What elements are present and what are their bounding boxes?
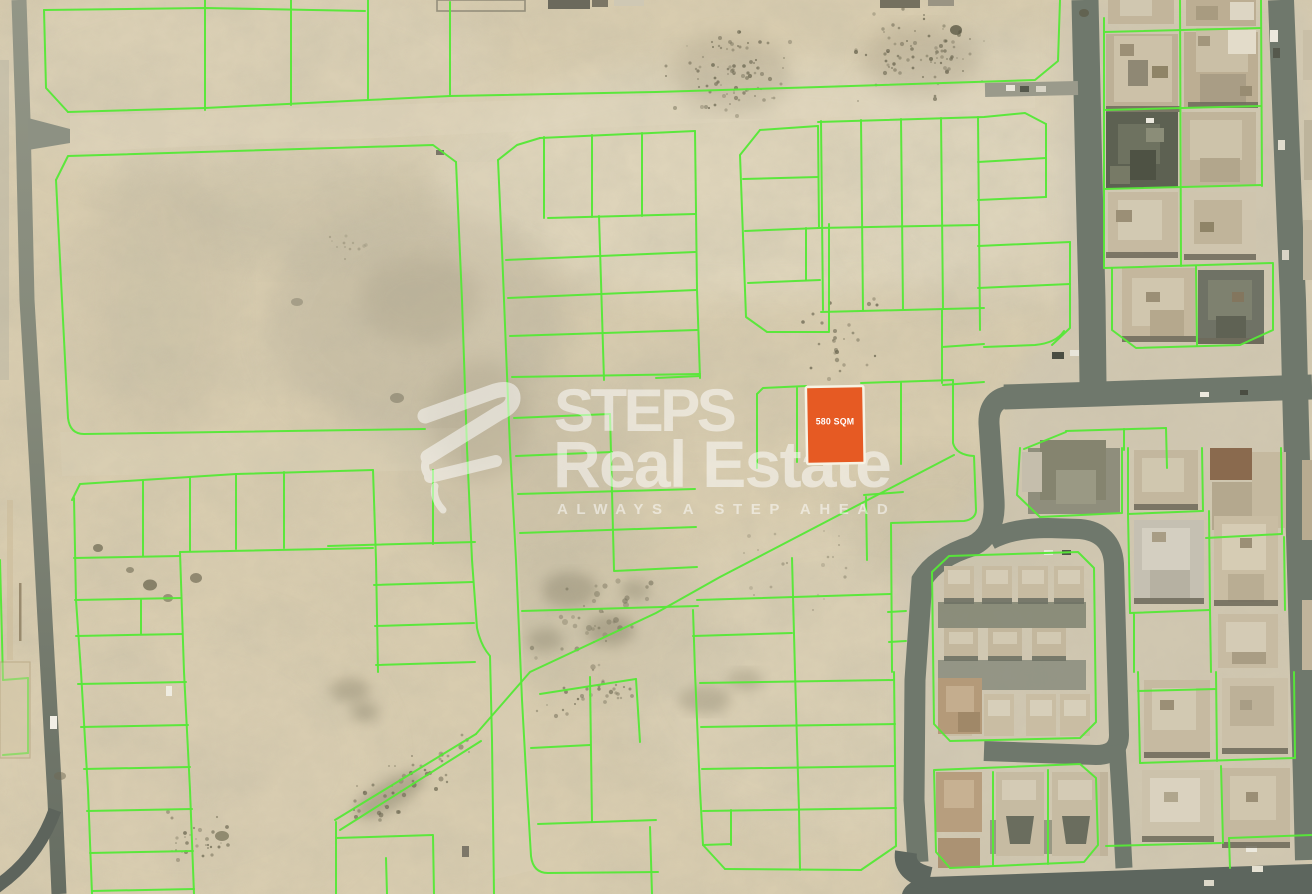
svg-text:580 SQM: 580 SQM xyxy=(816,417,855,427)
svg-text:ALWAYS A STEP AHEAD: ALWAYS A STEP AHEAD xyxy=(557,501,896,518)
